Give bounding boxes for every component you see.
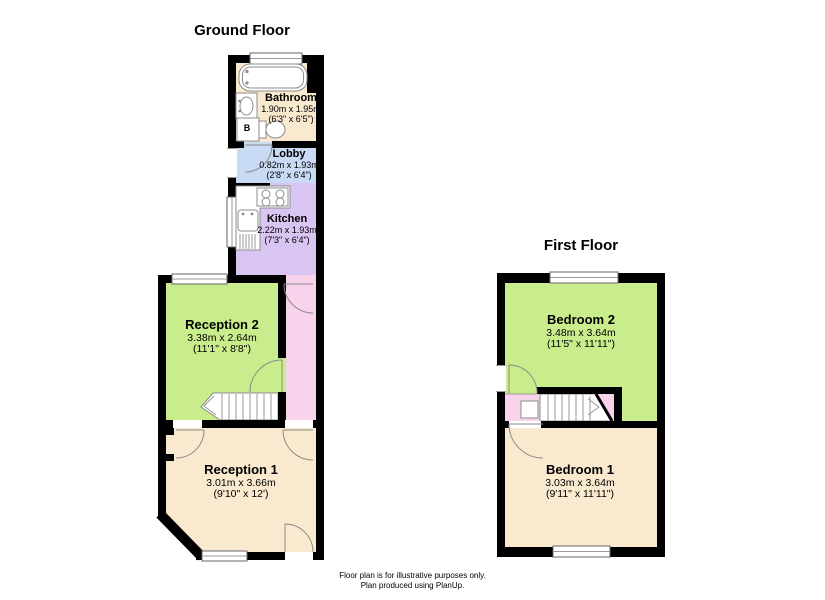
room-label-lobby: Lobby 0.82m x 1.93m (2'8" x 6'4") <box>259 148 319 180</box>
boiler-label: B <box>244 123 251 133</box>
room-label-kitchen: Kitchen 2.22m x 1.93m (7'3" x 6'4") <box>257 213 317 245</box>
room-label-bedroom1: Bedroom 1 3.03m x 3.64m (9'11" x 11'11") <box>545 463 614 501</box>
room-label-bedroom2: Bedroom 2 3.48m x 3.64m (11'5" x 11'11") <box>546 313 615 351</box>
landing-cupboard-icon <box>521 401 538 418</box>
door-gap-reception1 <box>173 420 202 428</box>
first-floor-title: First Floor <box>544 237 618 254</box>
door-gap-bedroom2 <box>496 365 506 392</box>
footer-disclaimer: Floor plan is for illustrative purposes … <box>0 571 825 592</box>
lobby-side-door-gap <box>227 148 237 178</box>
floorplan-canvas: Ground Floor First Floor Bathroom 1.90m … <box>0 0 825 600</box>
ground-floor-title: Ground Floor <box>194 22 290 39</box>
bath-icon <box>239 64 307 91</box>
room-label-reception1: Reception 1 3.01m x 3.66m (9'10" x 12') <box>204 463 278 501</box>
bathroom-sink-icon <box>236 93 257 119</box>
room-label-reception2: Reception 2 3.38m x 2.64m (11'1" x 8'8") <box>185 318 259 356</box>
stairs-ground-icon <box>201 393 283 420</box>
door-gap-hall-reception1 <box>285 420 313 428</box>
floorplan-drawing <box>0 0 825 600</box>
front-door-gap <box>285 552 313 560</box>
room-bedroom2-floor-right <box>622 394 657 421</box>
room-label-bathroom: Bathroom 1.90m x 1.95m (6'3" x 6'5") <box>261 92 321 124</box>
hallway-floor <box>286 275 316 420</box>
